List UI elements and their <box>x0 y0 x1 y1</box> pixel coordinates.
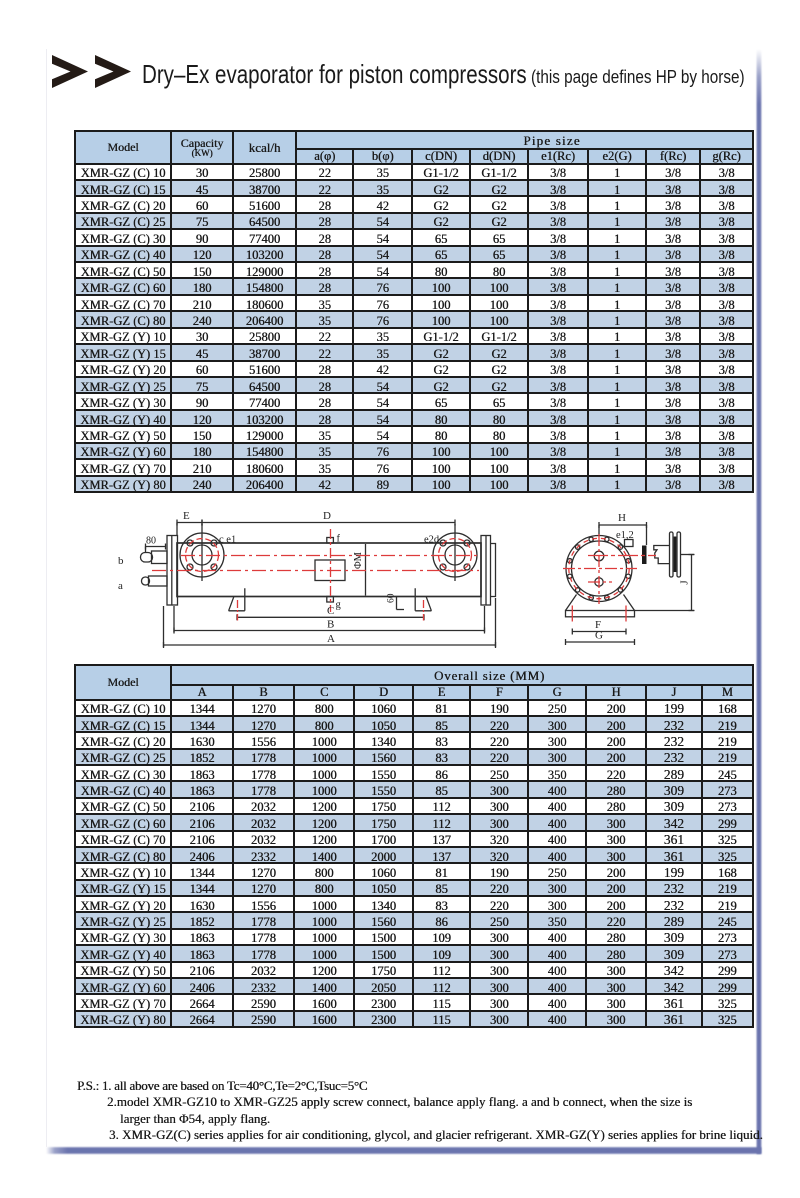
svg-text:ΦM: ΦM <box>353 551 364 569</box>
svg-text:c e1: c e1 <box>219 535 236 546</box>
svg-text:e2d: e2d <box>424 535 440 546</box>
svg-text:b: b <box>118 555 124 567</box>
svg-text:H: H <box>618 512 626 524</box>
svg-text:e1,2: e1,2 <box>616 530 634 541</box>
svg-text:80: 80 <box>146 536 156 547</box>
svg-text:A: A <box>327 633 335 645</box>
svg-text:E: E <box>183 510 190 522</box>
svg-text:a: a <box>118 580 123 592</box>
svg-text:G: G <box>595 630 603 642</box>
svg-text:60: 60 <box>387 593 397 603</box>
svg-text:J: J <box>679 580 691 585</box>
svg-text:f: f <box>337 534 341 545</box>
svg-text:D: D <box>323 510 331 522</box>
svg-text:g: g <box>336 600 342 611</box>
svg-text:C: C <box>327 605 334 617</box>
svg-text:B: B <box>327 619 334 631</box>
